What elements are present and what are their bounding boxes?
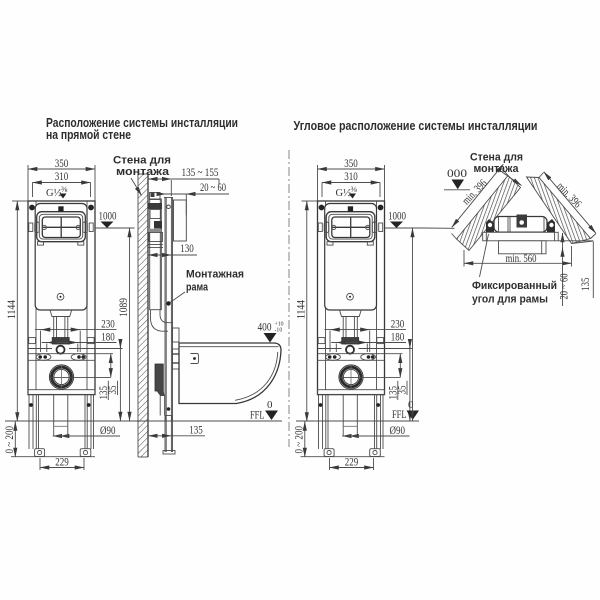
svg-text:000: 000 (447, 166, 467, 180)
svg-text:рама: рама (186, 282, 209, 294)
svg-text:135 ~ 155: 135 ~ 155 (182, 165, 219, 179)
svg-text:угол для рамы: угол для рамы (472, 294, 548, 306)
svg-text:Фиксированный: Фиксированный (472, 280, 557, 292)
svg-text:FFL: FFL (250, 408, 265, 422)
svg-text:Угловое расположение системы и: Угловое расположение системы инсталляции (294, 118, 538, 133)
svg-text:монтажа: монтажа (116, 166, 170, 178)
svg-text:20 ~ 60: 20 ~ 60 (557, 274, 571, 300)
svg-text:135: 135 (189, 423, 203, 437)
svg-text:135: 135 (578, 278, 592, 292)
svg-text:0: 0 (408, 399, 414, 411)
svg-text:FFL: FFL (392, 407, 407, 421)
svg-text:на прямой стене: на прямой стене (46, 127, 131, 142)
svg-text:Стена для: Стена для (113, 155, 171, 167)
svg-text:130: 130 (180, 241, 194, 255)
svg-text:min. 560: min. 560 (506, 251, 537, 265)
svg-text:0: 0 (267, 399, 273, 411)
svg-text:400: 400 (258, 320, 272, 334)
svg-text:-10: -10 (275, 328, 283, 334)
svg-text:1089: 1089 (116, 298, 130, 317)
svg-text:Монтажная: Монтажная (186, 269, 244, 281)
svg-text:20 ~ 60: 20 ~ 60 (200, 180, 226, 194)
svg-text:Стена для: Стена для (470, 152, 523, 164)
svg-text:монтажа: монтажа (474, 163, 520, 175)
